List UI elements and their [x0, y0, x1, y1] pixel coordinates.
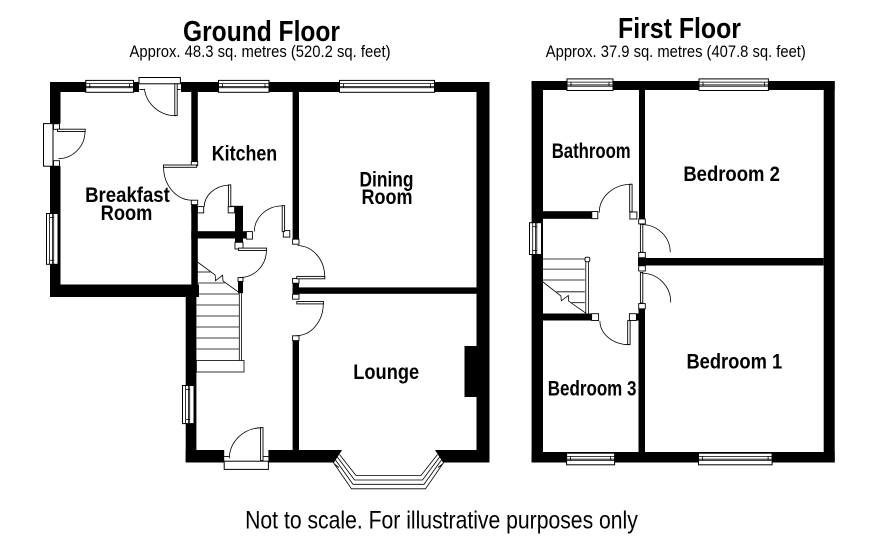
svg-text:Room: Room — [362, 186, 413, 209]
svg-text:Bedroom 2: Bedroom 2 — [683, 163, 780, 186]
svg-text:Kitchen: Kitchen — [212, 142, 277, 165]
svg-text:Room: Room — [101, 202, 153, 225]
svg-text:Lounge: Lounge — [353, 361, 419, 384]
svg-text:First Floor: First Floor — [618, 13, 741, 45]
svg-text:Bathroom: Bathroom — [552, 140, 631, 163]
svg-text:Approx. 37.9 sq. metres (407.8: Approx. 37.9 sq. metres (407.8 sq. feet) — [546, 42, 806, 61]
svg-text:Not to scale. For illustrative: Not to scale. For illustrative purposes … — [245, 507, 638, 535]
svg-text:Bedroom 3: Bedroom 3 — [548, 377, 637, 400]
svg-text:Approx. 48.3 sq. metres (520.2: Approx. 48.3 sq. metres (520.2 sq. feet) — [130, 42, 391, 61]
svg-text:Bedroom 1: Bedroom 1 — [686, 351, 782, 374]
